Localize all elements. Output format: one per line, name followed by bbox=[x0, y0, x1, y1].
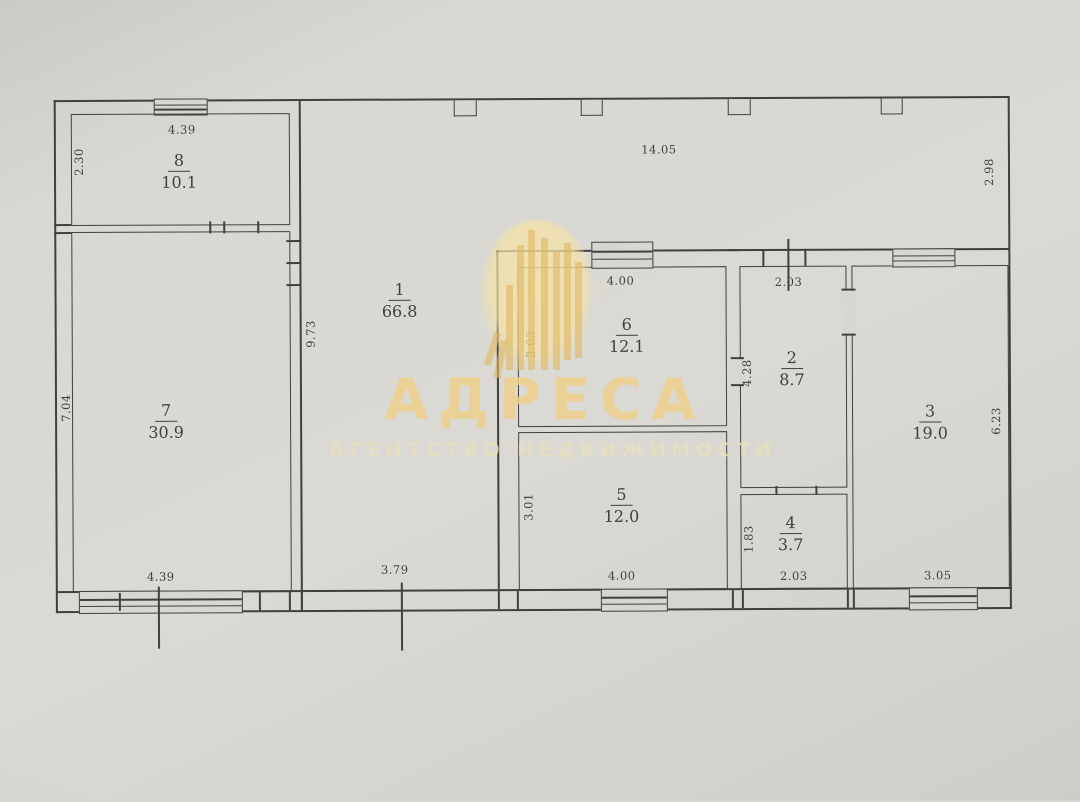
dimension-line bbox=[401, 583, 403, 651]
dim-room1-wall: 9.73 bbox=[304, 320, 318, 348]
door-jamb-tick bbox=[223, 221, 225, 233]
wall-tick bbox=[289, 592, 291, 610]
room-area: 3.7 bbox=[778, 535, 804, 555]
dim-room7-bottom: 4.39 bbox=[147, 570, 175, 584]
room-4-label: 4 3.7 bbox=[778, 513, 804, 555]
wall-tick bbox=[301, 592, 303, 610]
dim-room1-bottom: 3.79 bbox=[381, 563, 409, 577]
room-number: 6 bbox=[616, 316, 638, 336]
room-area: 66.8 bbox=[382, 301, 418, 321]
door-jamb-tick bbox=[842, 289, 856, 291]
wall-pilaster bbox=[728, 99, 751, 115]
window-symbol bbox=[79, 590, 243, 614]
wall-tick bbox=[119, 593, 121, 611]
window-symbol bbox=[909, 587, 978, 610]
dim-room2-top: 2.03 bbox=[775, 275, 803, 289]
wall-tick bbox=[853, 590, 855, 608]
wall-tick bbox=[54, 232, 71, 234]
dim-room4-left: 1.83 bbox=[742, 525, 756, 553]
door-jamb-tick bbox=[286, 240, 301, 242]
room-area: 30.9 bbox=[148, 422, 184, 442]
wall-tick bbox=[804, 249, 806, 266]
dim-room3-right: 6.23 bbox=[989, 407, 1003, 435]
dim-room6-top: 4.00 bbox=[607, 274, 635, 288]
door-jamb-tick bbox=[209, 221, 211, 233]
room-number: 3 bbox=[919, 402, 941, 422]
wall-tick bbox=[498, 591, 500, 609]
interior-wall-line bbox=[496, 250, 499, 589]
wall-pilaster bbox=[881, 98, 903, 114]
room-area: 12.0 bbox=[604, 506, 640, 526]
room-number: 2 bbox=[781, 349, 803, 369]
room-area: 19.0 bbox=[912, 423, 948, 443]
room-1-label: 1 66.8 bbox=[382, 280, 418, 322]
room-5-label: 5 12.0 bbox=[604, 485, 640, 527]
window-symbol bbox=[591, 242, 653, 269]
wall-tick bbox=[742, 590, 744, 608]
exterior-wall-line bbox=[54, 100, 58, 613]
dim-room2-left: 4.28 bbox=[740, 359, 754, 387]
dim-room5-left: 3.01 bbox=[521, 493, 535, 521]
wall-tick bbox=[732, 590, 734, 608]
room-number: 4 bbox=[779, 514, 801, 534]
dim-room8-left: 2.30 bbox=[72, 148, 86, 176]
dim-right-height: 2.98 bbox=[982, 158, 996, 186]
wall-tick bbox=[775, 486, 777, 495]
door-jamb-tick bbox=[286, 262, 301, 264]
wall-tick bbox=[517, 591, 519, 609]
room-area: 12.1 bbox=[609, 336, 645, 356]
window-symbol bbox=[892, 248, 955, 267]
room-7-label: 7 30.9 bbox=[148, 401, 184, 443]
dim-room5-bottom: 4.00 bbox=[608, 569, 636, 583]
dim-room3-bottom: 3.05 bbox=[924, 568, 952, 582]
wall-pilaster bbox=[454, 100, 477, 116]
dim-room6-left: 3.03 bbox=[524, 330, 538, 358]
wall-tick bbox=[54, 224, 71, 226]
door-jamb-tick bbox=[842, 334, 856, 336]
room-number: 7 bbox=[155, 402, 177, 422]
dim-room7-left: 7.04 bbox=[59, 394, 73, 422]
wall-tick bbox=[762, 249, 764, 266]
dim-top-width: 14.05 bbox=[641, 142, 676, 156]
room-number: 8 bbox=[168, 152, 190, 172]
dim-room8-top: 4.39 bbox=[168, 123, 196, 137]
floor-plan: 8 10.1 7 30.9 1 66.8 6 12.1 5 12.0 2 8.7… bbox=[0, 0, 1080, 802]
room-number: 5 bbox=[610, 486, 632, 506]
wall-pilaster bbox=[581, 100, 603, 116]
room-6-label: 6 12.1 bbox=[609, 315, 645, 357]
room-number: 1 bbox=[388, 281, 410, 301]
wall-tick bbox=[847, 590, 849, 608]
wall-tick bbox=[259, 592, 261, 610]
room-3-label: 3 19.0 bbox=[912, 401, 948, 443]
interior-wall-line bbox=[299, 99, 303, 612]
door-jamb-tick bbox=[286, 284, 301, 286]
dim-room4-bottom: 2.03 bbox=[780, 569, 808, 583]
interior-wall-line bbox=[727, 248, 1009, 251]
door-opening bbox=[842, 291, 856, 335]
dimension-line bbox=[158, 587, 160, 649]
room-2-label: 2 8.7 bbox=[779, 348, 805, 390]
wall-tick bbox=[815, 486, 817, 495]
door-jamb-tick bbox=[257, 221, 259, 233]
window-symbol bbox=[601, 588, 668, 611]
room-area: 8.7 bbox=[779, 370, 805, 390]
room-8-label: 8 10.1 bbox=[161, 151, 197, 193]
floor-plan-photo: 8 10.1 7 30.9 1 66.8 6 12.1 5 12.0 2 8.7… bbox=[0, 0, 1080, 800]
room-area: 10.1 bbox=[161, 172, 197, 192]
